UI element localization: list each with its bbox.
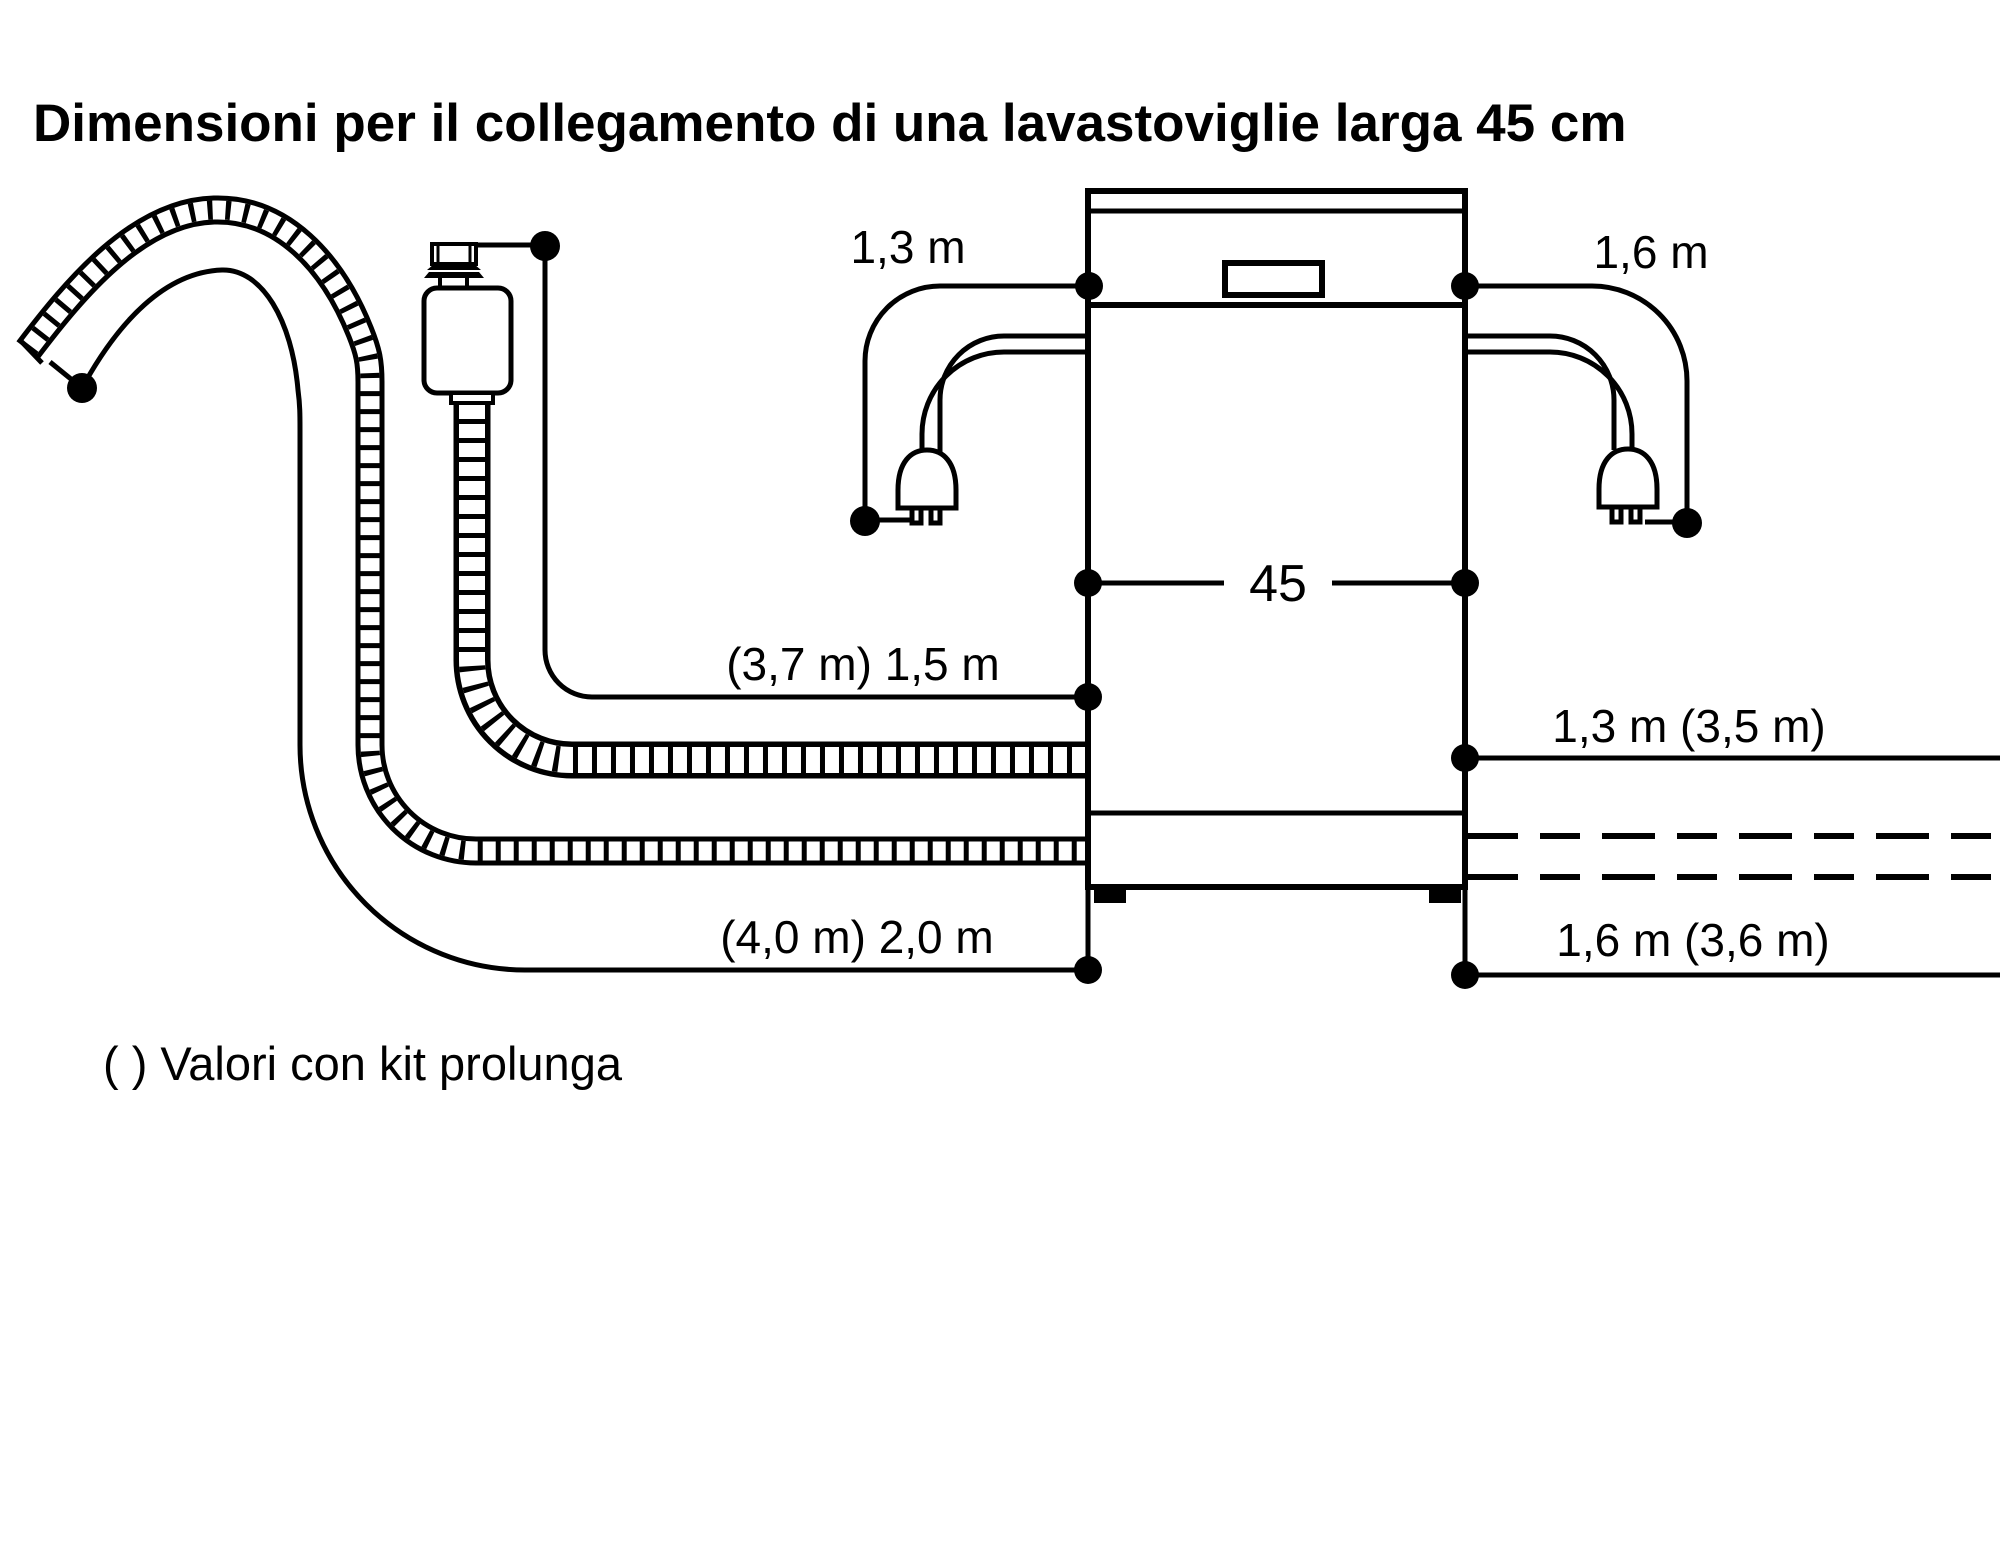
- plug-prong: [1612, 507, 1621, 522]
- label-drain-hose-right: 1,6 m (3,6 m): [1556, 914, 1830, 966]
- dot-aquastop-end: [530, 231, 560, 261]
- label-inlet-hose-right: 1,3 m (3,5 m): [1552, 700, 1826, 752]
- power-plug-right: [1599, 449, 1657, 522]
- dishwasher: [1088, 191, 1465, 903]
- dot-plug-left: [850, 506, 880, 536]
- aquastop-flange-upper: [427, 264, 481, 270]
- plug-prong: [931, 508, 940, 523]
- label-power-cord-left: 1,3 m: [850, 221, 965, 273]
- leader-inlet-left: [545, 256, 1088, 697]
- label-power-cord-right: 1,6 m: [1593, 226, 1708, 278]
- plug-prong: [912, 508, 921, 523]
- dot-body-top-right: [1451, 272, 1479, 300]
- label-drain-hose-left: (4,0 m) 2,0 m: [720, 911, 994, 963]
- aquastop-outlet: [451, 393, 493, 403]
- dot-inlet-right: [1451, 744, 1479, 772]
- power-cord-right: [1460, 336, 1632, 450]
- dot-drain-right: [1451, 961, 1479, 989]
- plug-prong: [1631, 507, 1640, 522]
- dot-width-right: [1451, 569, 1479, 597]
- aquastop-body: [424, 288, 511, 393]
- dot-width-left: [1074, 569, 1102, 597]
- label-appliance-width: 45: [1249, 555, 1307, 613]
- dot-inlet-connection: [1074, 683, 1102, 711]
- dot-drain-connection: [1074, 956, 1102, 984]
- dot-plug-right: [1672, 508, 1702, 538]
- dot-drain-hose-end: [67, 373, 97, 403]
- power-cord-left: [922, 336, 1095, 452]
- dishwasher-connection-diagram: 1,3 m 1,6 m 45 (3,7 m) 1,5 m 1,3 m (3,5 …: [0, 0, 2000, 1548]
- power-plug-left: [898, 450, 956, 523]
- foot-right: [1429, 887, 1461, 903]
- page: Dimensioni per il collegamento di una la…: [0, 0, 2000, 1548]
- inlet-hose: [472, 400, 1095, 760]
- aquastop-flange-lower: [424, 272, 484, 278]
- aquastop-valve: [424, 244, 511, 403]
- footnote: ( ) Valori con kit prolunga: [103, 1036, 622, 1091]
- label-inlet-hose-left: (3,7 m) 1,5 m: [726, 638, 1000, 690]
- door-handle: [1225, 263, 1322, 295]
- dot-body-top-left: [1075, 272, 1103, 300]
- foot-left: [1094, 887, 1126, 903]
